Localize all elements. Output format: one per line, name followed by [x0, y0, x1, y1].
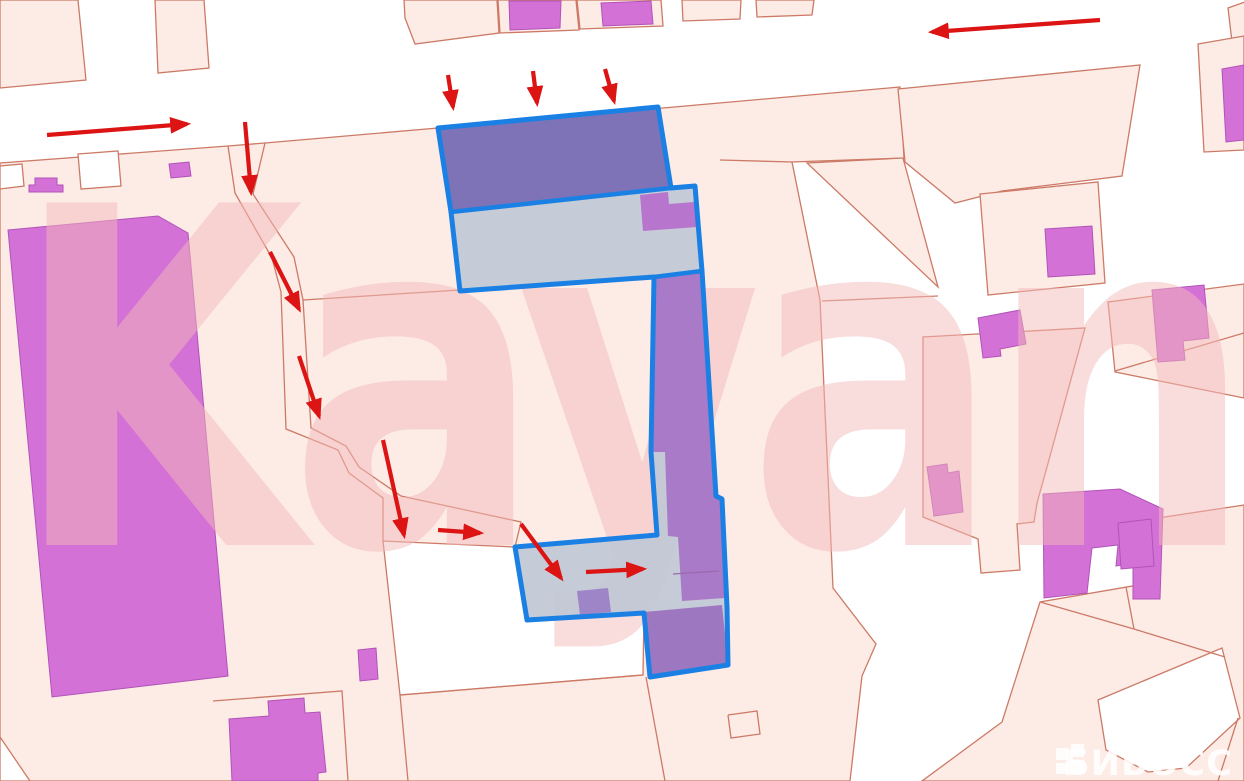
selection-overlay-layer: [0, 0, 1244, 781]
map-canvas[interactable]: Kayan БИБОСС: [0, 0, 1244, 781]
direction-arrow: [586, 569, 643, 572]
direction-arrow: [47, 124, 187, 135]
direction-arrow: [438, 530, 480, 533]
direction-arrow: [245, 122, 251, 192]
selection-building-small: [577, 588, 611, 615]
direction-arrow: [533, 71, 537, 103]
direction-arrow: [605, 69, 614, 101]
direction-arrow: [448, 75, 453, 107]
direction-arrow: [270, 252, 299, 309]
direction-arrow: [383, 440, 404, 535]
direction-arrow: [932, 20, 1100, 32]
direction-arrow: [299, 356, 319, 416]
